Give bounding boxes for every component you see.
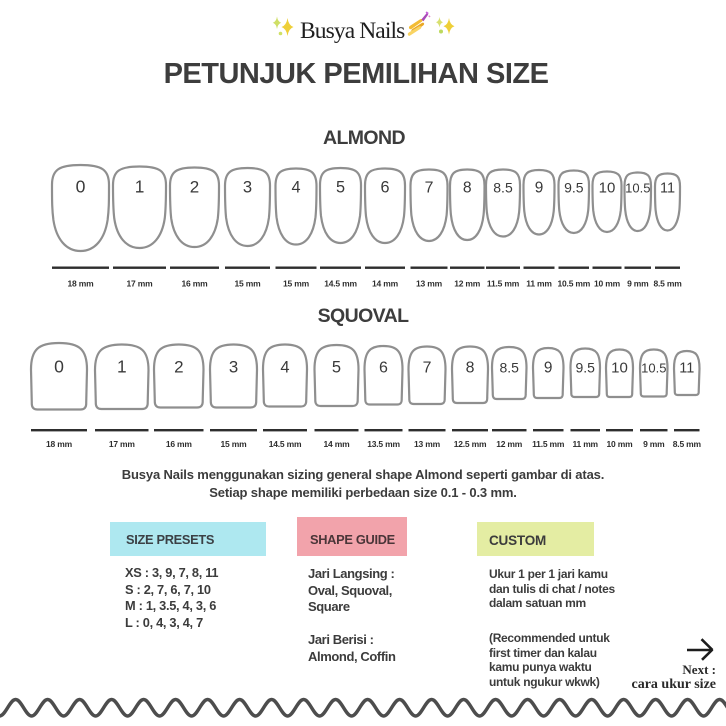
svg-text:9: 9 xyxy=(535,180,544,197)
svg-text:11: 11 xyxy=(679,361,694,377)
svg-text:16 mm: 16 mm xyxy=(166,439,193,449)
svg-text:11: 11 xyxy=(660,181,675,197)
svg-text:2: 2 xyxy=(174,358,183,377)
svg-text:13 mm: 13 mm xyxy=(416,279,443,289)
svg-text:9.5: 9.5 xyxy=(575,360,595,376)
svg-text:4: 4 xyxy=(291,179,300,197)
svg-text:10: 10 xyxy=(611,360,628,377)
svg-text:8.5 mm: 8.5 mm xyxy=(673,439,702,449)
svg-text:2: 2 xyxy=(190,178,199,197)
svg-text:9 mm: 9 mm xyxy=(627,279,649,289)
svg-text:12.5 mm: 12.5 mm xyxy=(454,439,487,449)
svg-text:10.5: 10.5 xyxy=(625,181,650,196)
svg-text:16 mm: 16 mm xyxy=(182,279,209,289)
svg-text:10 mm: 10 mm xyxy=(594,279,621,289)
svg-text:15 mm: 15 mm xyxy=(283,279,310,289)
svg-text:14 mm: 14 mm xyxy=(324,439,351,449)
svg-text:12 mm: 12 mm xyxy=(454,279,481,289)
svg-text:14.5 mm: 14.5 mm xyxy=(269,439,302,449)
svg-text:8: 8 xyxy=(466,360,475,377)
svg-text:7: 7 xyxy=(423,360,432,377)
svg-text:11.5 mm: 11.5 mm xyxy=(487,279,520,289)
svg-text:10.5 mm: 10.5 mm xyxy=(557,279,590,289)
svg-text:4: 4 xyxy=(280,359,289,377)
svg-text:6: 6 xyxy=(379,360,388,377)
svg-text:3: 3 xyxy=(243,178,252,197)
svg-text:5: 5 xyxy=(336,179,345,197)
svg-text:8.5: 8.5 xyxy=(499,360,519,376)
svg-text:1: 1 xyxy=(117,357,127,377)
svg-text:11 mm: 11 mm xyxy=(526,279,552,289)
svg-text:9: 9 xyxy=(544,360,553,377)
svg-text:15 mm: 15 mm xyxy=(221,439,248,449)
svg-text:9 mm: 9 mm xyxy=(643,439,665,449)
svg-text:17 mm: 17 mm xyxy=(127,279,154,289)
svg-text:13 mm: 13 mm xyxy=(414,439,441,449)
svg-text:9.5: 9.5 xyxy=(564,180,584,196)
svg-text:1: 1 xyxy=(135,177,145,197)
svg-text:6: 6 xyxy=(380,179,389,197)
svg-text:17 mm: 17 mm xyxy=(109,439,136,449)
svg-text:12 mm: 12 mm xyxy=(496,439,523,449)
svg-text:15 mm: 15 mm xyxy=(235,279,262,289)
svg-text:7: 7 xyxy=(425,180,434,197)
svg-text:10.5: 10.5 xyxy=(641,361,666,376)
svg-text:3: 3 xyxy=(229,358,238,377)
svg-text:18 mm: 18 mm xyxy=(46,439,73,449)
svg-text:18 mm: 18 mm xyxy=(68,279,95,289)
svg-text:5: 5 xyxy=(332,359,341,377)
svg-text:8: 8 xyxy=(463,180,472,197)
svg-text:0: 0 xyxy=(54,357,64,377)
svg-text:10: 10 xyxy=(599,180,616,197)
svg-text:14 mm: 14 mm xyxy=(372,279,399,289)
svg-text:14.5 mm: 14.5 mm xyxy=(324,279,357,289)
svg-text:0: 0 xyxy=(76,177,86,197)
svg-text:8.5: 8.5 xyxy=(493,180,513,196)
svg-text:11 mm: 11 mm xyxy=(572,439,598,449)
svg-text:8.5 mm: 8.5 mm xyxy=(653,279,682,289)
svg-text:11.5 mm: 11.5 mm xyxy=(532,439,565,449)
svg-text:13.5 mm: 13.5 mm xyxy=(367,439,400,449)
svg-text:10 mm: 10 mm xyxy=(607,439,634,449)
